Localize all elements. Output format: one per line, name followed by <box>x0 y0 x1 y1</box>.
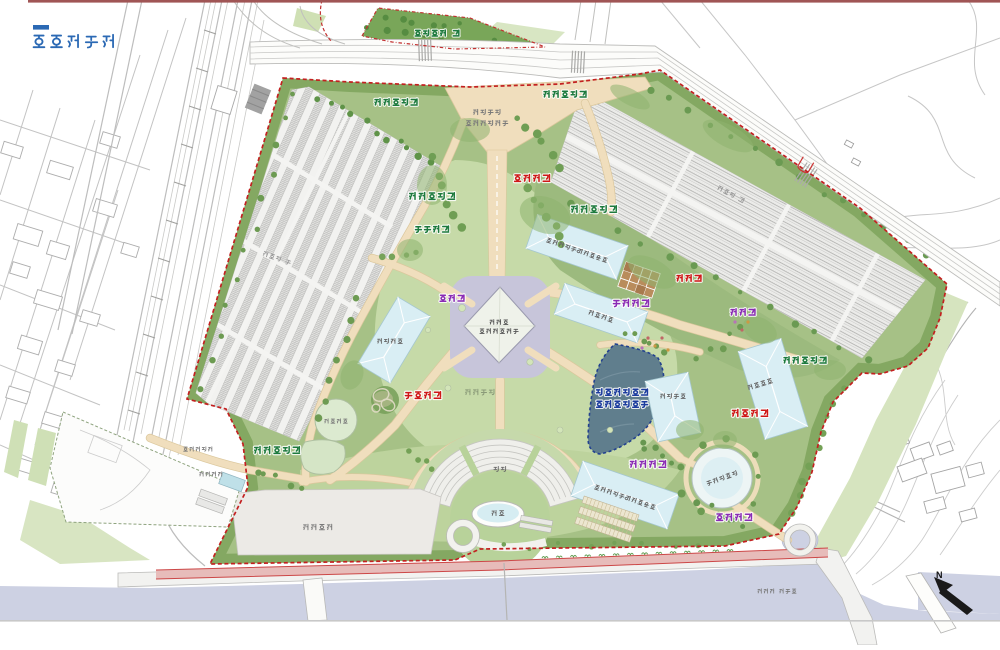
svg-text:N: N <box>936 570 943 580</box>
